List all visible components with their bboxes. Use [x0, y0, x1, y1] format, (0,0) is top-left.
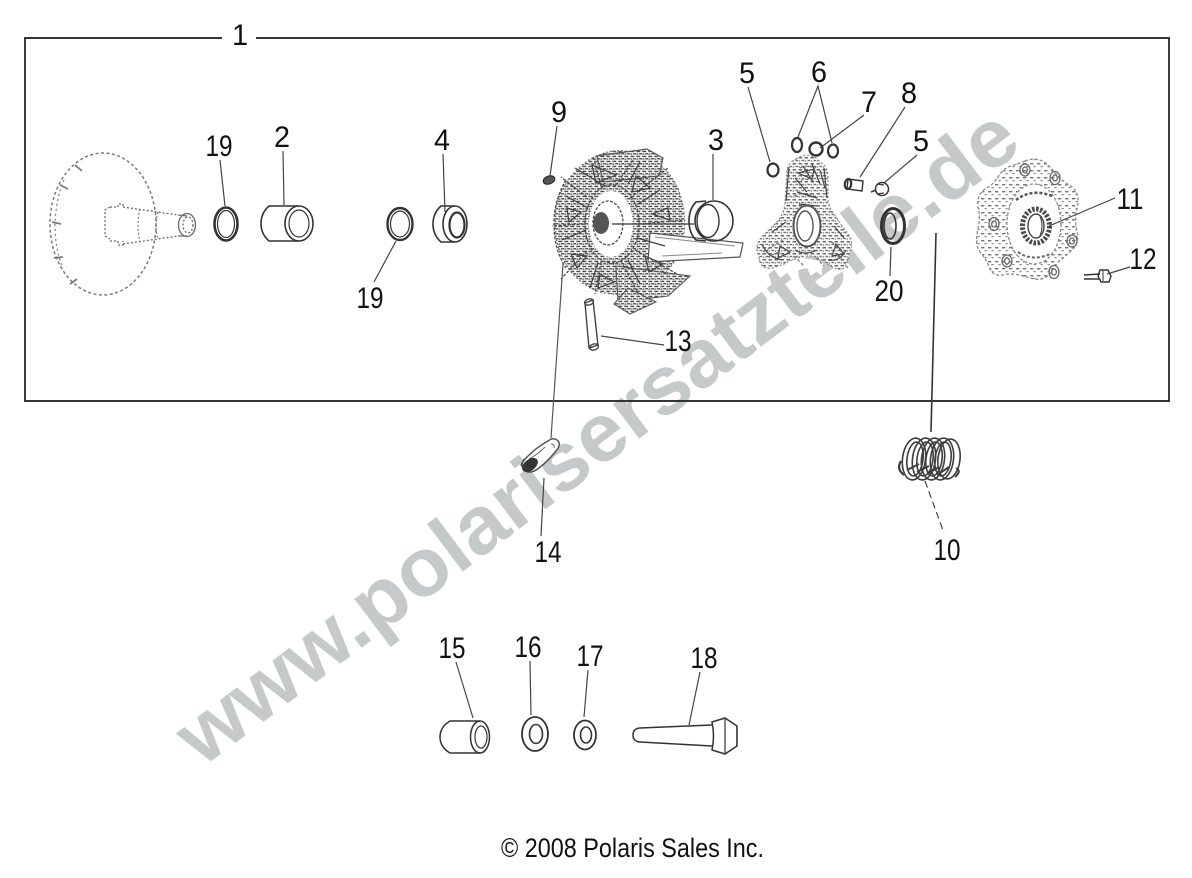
- svg-text:19: 19: [357, 282, 384, 315]
- svg-text:9: 9: [551, 96, 567, 129]
- svg-text:15: 15: [439, 632, 466, 665]
- svg-text:18: 18: [691, 642, 718, 675]
- svg-text:4: 4: [434, 124, 450, 157]
- svg-text:20: 20: [875, 275, 904, 308]
- svg-text:13: 13: [665, 325, 692, 358]
- svg-text:6: 6: [811, 56, 827, 89]
- svg-text:14: 14: [535, 536, 562, 569]
- svg-text:7: 7: [861, 86, 877, 119]
- svg-text:1: 1: [232, 19, 248, 52]
- svg-text:16: 16: [515, 631, 542, 664]
- svg-text:3: 3: [708, 124, 724, 157]
- svg-text:8: 8: [901, 77, 917, 110]
- svg-text:© 2008 Polaris Sales Inc.: © 2008 Polaris Sales Inc.: [501, 833, 764, 863]
- svg-text:10: 10: [934, 534, 961, 567]
- svg-text:2: 2: [274, 121, 290, 154]
- svg-text:5: 5: [739, 57, 755, 90]
- svg-text:17: 17: [577, 640, 604, 673]
- svg-text:12: 12: [1130, 243, 1157, 276]
- svg-text:19: 19: [206, 130, 233, 163]
- svg-text:5: 5: [913, 125, 929, 158]
- svg-text:11: 11: [1117, 183, 1144, 216]
